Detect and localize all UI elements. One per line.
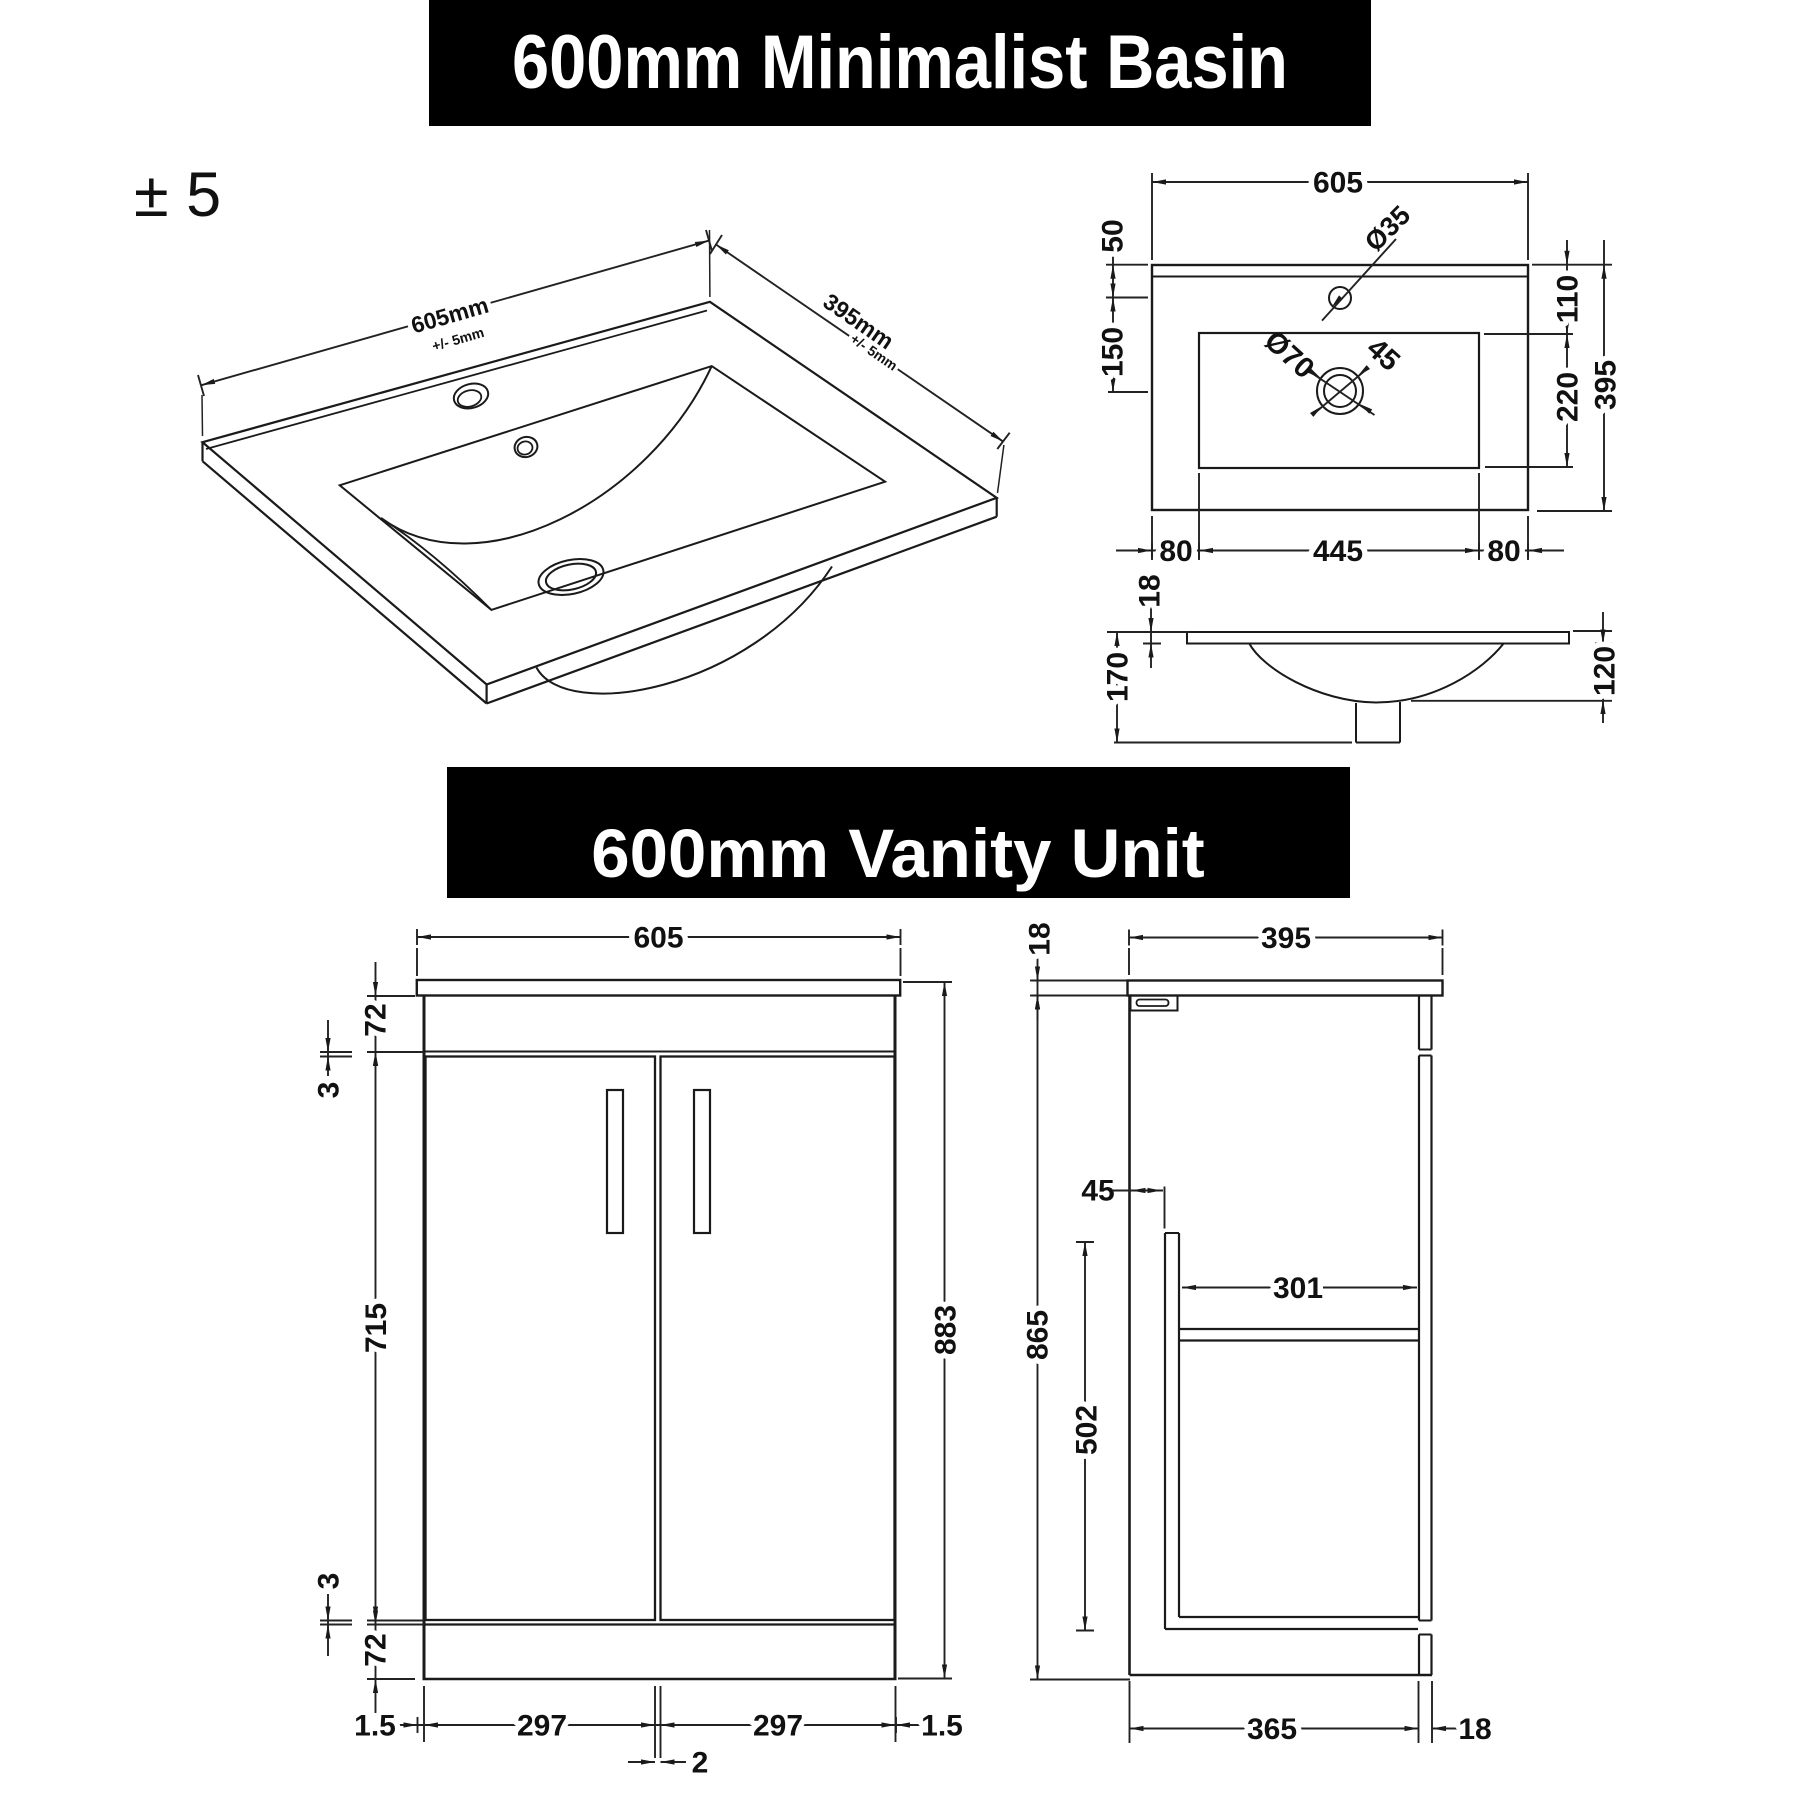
- svg-text:72: 72: [360, 1633, 393, 1666]
- svg-text:395: 395: [1590, 360, 1623, 410]
- svg-text:80: 80: [1487, 535, 1520, 568]
- svg-text:80: 80: [1159, 535, 1192, 568]
- svg-text:18: 18: [1458, 1713, 1491, 1746]
- svg-text:365: 365: [1247, 1713, 1297, 1746]
- svg-text:605: 605: [1313, 167, 1363, 200]
- svg-text:865: 865: [1022, 1310, 1055, 1360]
- svg-text:445: 445: [1313, 535, 1363, 568]
- svg-text:3: 3: [313, 1573, 346, 1590]
- svg-text:600mm Vanity Unit: 600mm Vanity Unit: [591, 815, 1205, 892]
- svg-text:297: 297: [517, 1710, 567, 1743]
- svg-text:18: 18: [1134, 574, 1167, 607]
- svg-text:3: 3: [313, 1082, 346, 1099]
- svg-text:883: 883: [930, 1305, 963, 1355]
- svg-text:502: 502: [1071, 1405, 1104, 1455]
- svg-text:1.5: 1.5: [921, 1710, 963, 1743]
- svg-text:1.5: 1.5: [354, 1710, 396, 1743]
- svg-text:45: 45: [1081, 1175, 1114, 1208]
- svg-text:150: 150: [1097, 327, 1130, 377]
- svg-text:120: 120: [1589, 646, 1622, 696]
- svg-text:110: 110: [1552, 275, 1585, 323]
- svg-text:50: 50: [1097, 219, 1130, 252]
- svg-text:600mm Minimalist Basin: 600mm Minimalist Basin: [512, 20, 1288, 105]
- svg-text:± 5: ± 5: [134, 160, 221, 230]
- svg-text:72: 72: [360, 1003, 393, 1036]
- svg-text:715: 715: [360, 1303, 393, 1353]
- svg-text:18: 18: [1024, 922, 1057, 955]
- svg-text:301: 301: [1273, 1272, 1323, 1305]
- svg-text:605: 605: [633, 922, 683, 955]
- svg-text:395: 395: [1261, 922, 1311, 955]
- svg-text:220: 220: [1552, 372, 1585, 422]
- svg-text:2: 2: [692, 1747, 709, 1780]
- svg-text:170: 170: [1102, 652, 1135, 702]
- svg-text:297: 297: [753, 1710, 803, 1743]
